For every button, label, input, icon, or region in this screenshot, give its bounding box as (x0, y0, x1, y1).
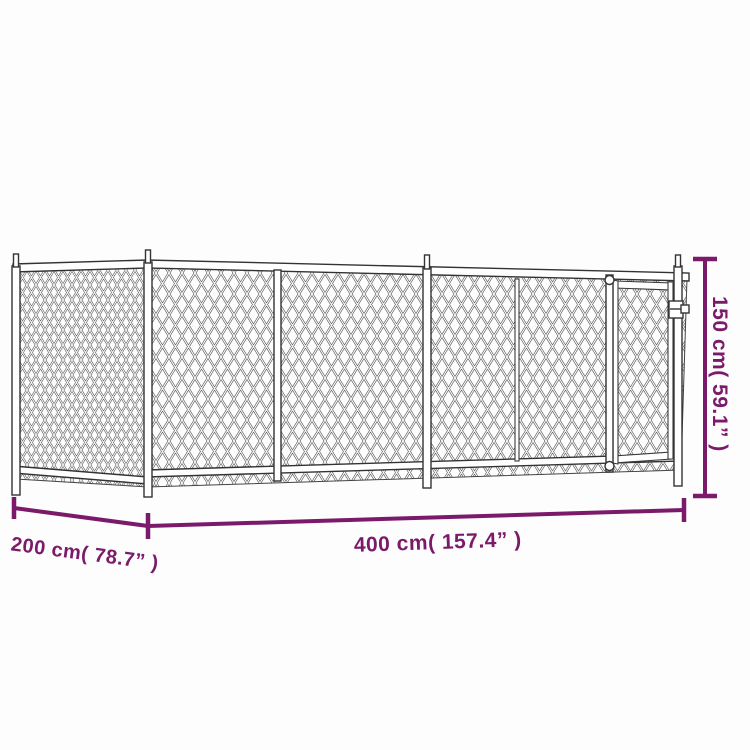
post-cap (425, 255, 430, 269)
fence-post (606, 275, 613, 472)
fence-post (144, 262, 152, 497)
side-mesh-panel (16, 264, 148, 487)
gate-hinge-bottom (605, 462, 614, 471)
dimension-depth-label: 200 cm( 78.7” ) (10, 533, 160, 574)
dimension-length: 400 cm( 157.4” ) (148, 498, 684, 557)
kennel-illustration (12, 250, 689, 497)
dimension-depth: 200 cm( 78.7” ) (10, 497, 160, 575)
fence-post (423, 268, 431, 488)
fence-post (12, 266, 20, 495)
panel-divider (515, 279, 519, 461)
fence-post (274, 270, 281, 481)
dimension-height: 150 cm( 59.1” ) (693, 259, 731, 496)
dimension-length-label: 400 cm( 157.4” ) (353, 528, 522, 557)
fence-post (674, 266, 682, 486)
post-cap (676, 255, 681, 267)
post-cap (14, 254, 19, 267)
gate-left-stile (613, 280, 618, 464)
dimension-height-label: 150 cm( 59.1” ) (708, 296, 731, 452)
gate-hinge-top (605, 276, 614, 285)
post-cap (146, 250, 151, 263)
gate-top-bar (614, 281, 672, 290)
diagram-canvas: 150 cm( 59.1” ) 400 cm( 157.4” ) 200 cm(… (0, 0, 750, 750)
